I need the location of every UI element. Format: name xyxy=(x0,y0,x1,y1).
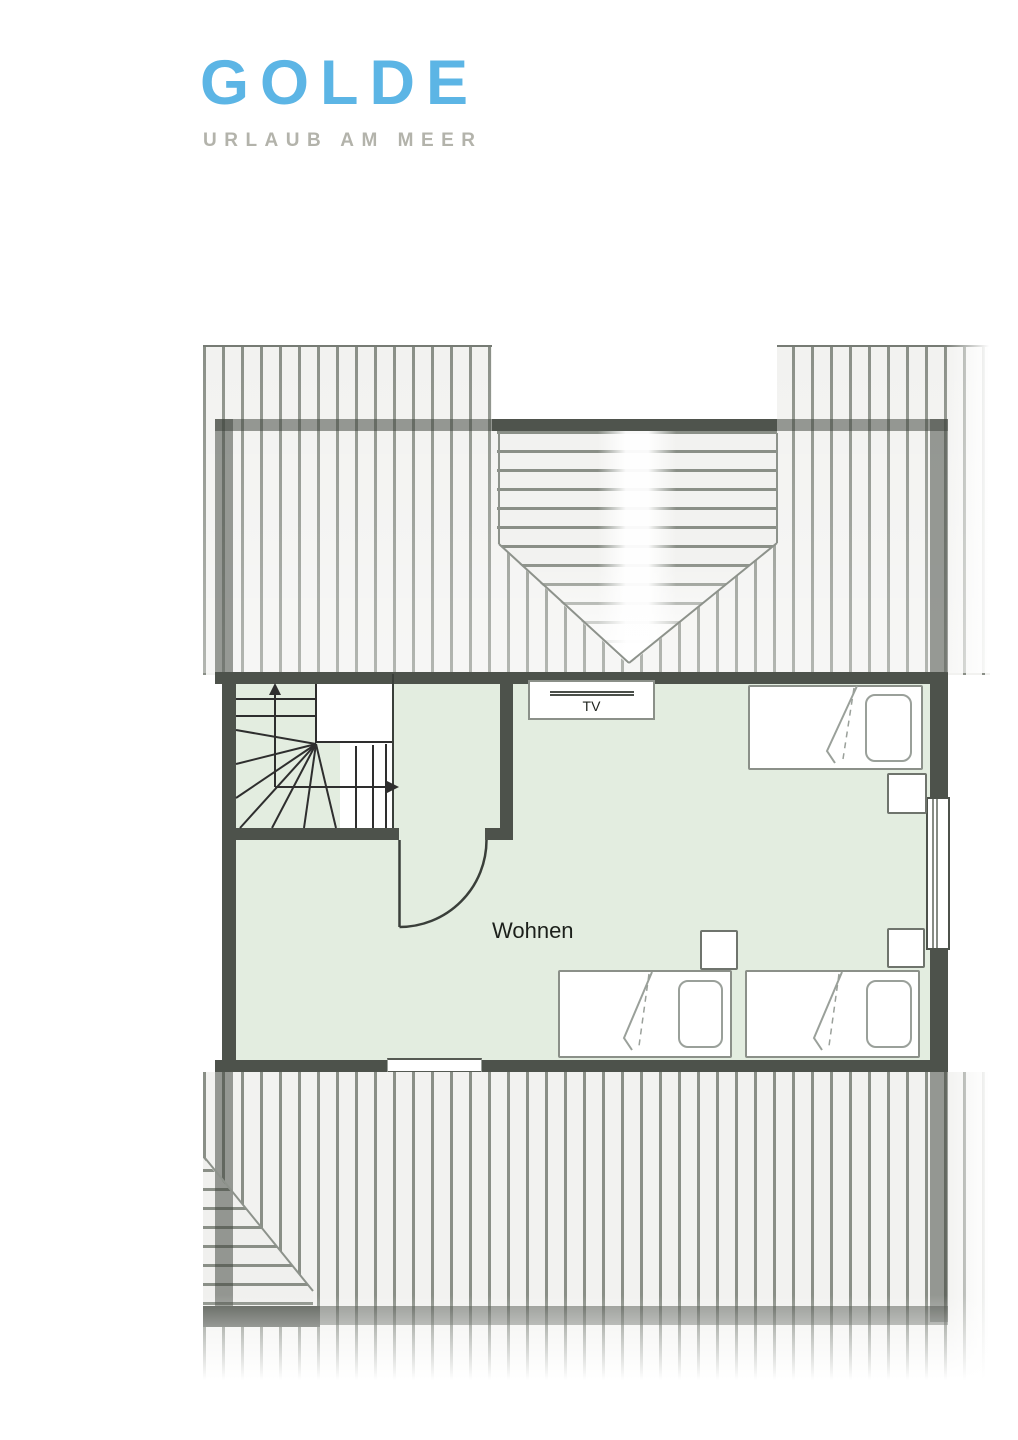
nightstand xyxy=(887,773,927,814)
stair-enclosure-wall xyxy=(222,828,399,840)
outer-wall-left-lower xyxy=(215,1072,233,1325)
tv-screen-icon xyxy=(550,691,634,696)
nightstand xyxy=(887,928,925,968)
room-wall-left xyxy=(222,672,236,1072)
stair-lower-run xyxy=(340,743,393,828)
door-jamb xyxy=(485,828,500,840)
tv-label: TV xyxy=(530,698,653,714)
pillow xyxy=(866,980,912,1048)
roof-fade-bottom xyxy=(203,1295,990,1395)
roof-fade-right-top xyxy=(945,345,1000,673)
window-bottom-wall xyxy=(387,1058,482,1073)
nightstand xyxy=(700,930,738,970)
tv-unit: TV xyxy=(528,680,655,720)
logo-name: GOLDE xyxy=(200,52,479,115)
pillow xyxy=(678,980,723,1048)
window-glazing-line xyxy=(932,799,934,948)
outer-wall-top-dormer xyxy=(492,419,777,431)
logo-initial: G xyxy=(103,69,152,129)
pillow xyxy=(865,694,912,762)
window-right-wall xyxy=(926,797,950,950)
logo-circle-icon: G xyxy=(78,51,178,151)
interior-wall-stair xyxy=(500,672,513,840)
room-label: Wohnen xyxy=(492,918,574,944)
outer-wall-left-upper xyxy=(215,419,233,672)
room-wall-bottom xyxy=(215,1060,948,1072)
logo-tagline: URLAUB AM MEER xyxy=(203,131,483,150)
dormer-gap xyxy=(492,344,777,419)
stair-landing xyxy=(315,684,393,743)
floor-plan-page: G GOLDE URLAUB AM MEER TV Wohnen xyxy=(0,0,1018,1440)
window-glazing-line xyxy=(936,799,938,948)
